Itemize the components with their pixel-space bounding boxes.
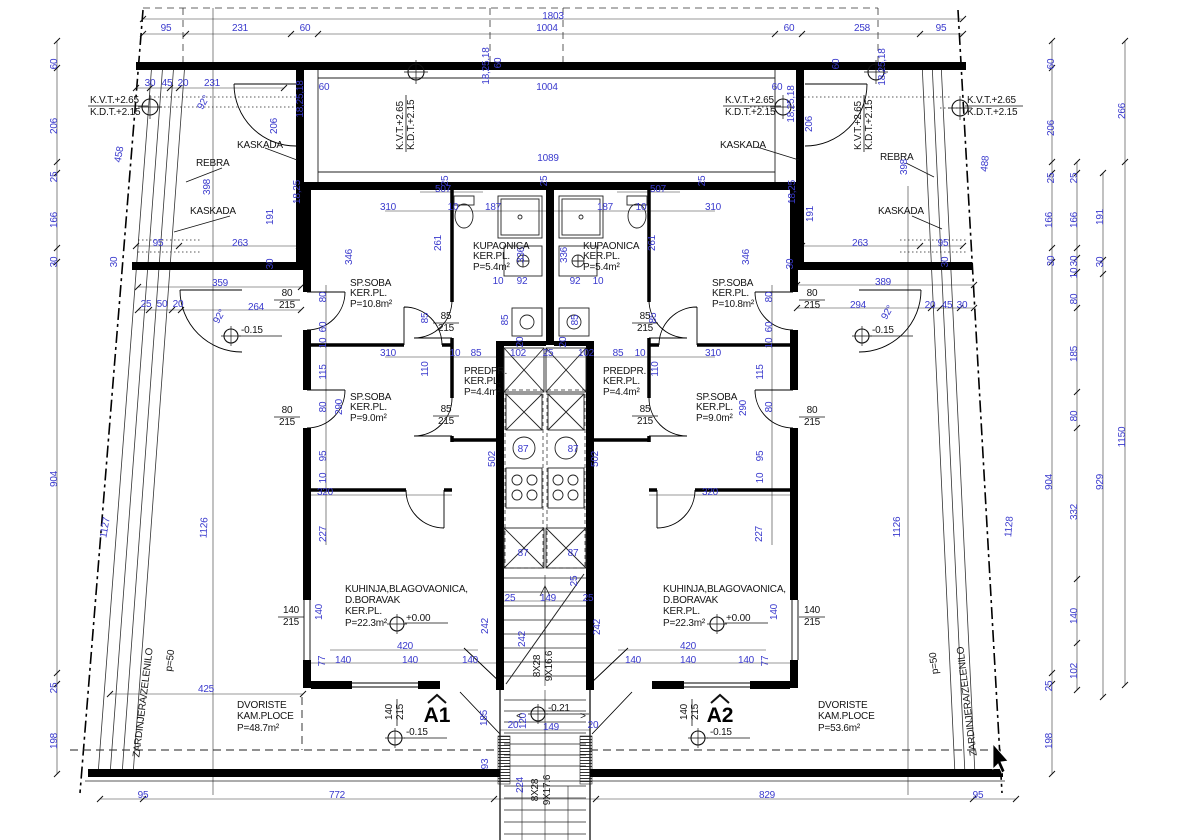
dimension-label: 10 [448, 202, 459, 213]
dimension-label: 290 [334, 398, 345, 415]
drawing-label: K.D.T.+2.15 [725, 107, 776, 118]
dimension-label: 95 [138, 790, 149, 801]
drawing-label: DVORISTE [818, 700, 868, 711]
drawing-label: 215 [283, 617, 300, 628]
dimension-label: 85 [500, 314, 511, 325]
dimension-label: 310 [380, 348, 397, 359]
dimension-label: 425 [198, 684, 215, 695]
drawing-label: K.D.T.+2.15 [967, 107, 1018, 118]
dimension-label: 85 [420, 312, 431, 323]
drawing-label: P=53.6m² [818, 723, 861, 734]
dimension-label: 60 [764, 321, 775, 332]
dimension-label: 102 [510, 348, 527, 359]
drawing-label: 80 [807, 288, 818, 299]
dimension-label: 10 [450, 348, 461, 359]
dimension-label: 50 [157, 299, 168, 310]
dimension-label: 187 [597, 202, 614, 213]
dimension-label: 25 [569, 575, 580, 586]
drawing-label: 215 [637, 323, 654, 334]
dimension-label: 10 [764, 337, 775, 348]
dimension-label: 60 [831, 58, 842, 69]
dimension-label: 18,25 [292, 179, 303, 204]
drawing-label: 215 [690, 703, 701, 720]
dimension-label: 294 [850, 300, 867, 311]
drawing-label: 80 [282, 405, 293, 416]
dimension-label: 92° [195, 94, 212, 112]
dimension-label: 20 [558, 336, 569, 347]
dimension-label: 30 [145, 78, 156, 89]
drawing-label: 9X16.6 [544, 650, 555, 681]
dimension-label: 30 [109, 256, 120, 267]
drawing-label: K.V.T.+2.65 [853, 101, 864, 150]
dimension-label: 30 [1095, 256, 1106, 267]
dimension-label: 25 [697, 175, 708, 186]
dimension-label: 60 [493, 57, 504, 68]
dimension-label: 904 [1044, 473, 1055, 490]
drawing-label: K.D.T.+2.15 [90, 107, 141, 118]
dimension-label: 231 [204, 78, 221, 89]
dimension-label: 77 [760, 655, 771, 666]
drawing-label: -0.15 [710, 727, 732, 738]
dimension-label: 85 [471, 348, 482, 359]
drawing-label: KER.PL. [712, 288, 749, 299]
dimension-label: 10 [318, 472, 329, 483]
drawing-label: +0.00 [726, 613, 751, 624]
dimension-label: 18,25,18 [481, 47, 492, 85]
drawing-label: -0.15 [872, 325, 894, 336]
drawing-label: 215 [438, 323, 455, 334]
drawing-label: K.D.T.+2.15 [864, 99, 875, 150]
drawing-label: KER.PL. [345, 606, 382, 617]
drawing-label: P=48.7m² [237, 723, 280, 734]
dimension-label: 140 [680, 655, 697, 666]
dimension-label: 346 [741, 248, 752, 265]
dimension-label: 1126 [198, 517, 210, 539]
drawing-label: -0.15 [241, 325, 263, 336]
dimension-label: 242 [517, 630, 528, 647]
dimension-label: 140 [462, 655, 479, 666]
dimension-label: 25 [49, 682, 60, 693]
dimension-label: 25 [505, 593, 516, 604]
dimension-label: 60 [1046, 58, 1057, 69]
drawing-label: REBRA [196, 158, 230, 169]
drawing-label: KER.PL. [583, 251, 620, 262]
dimension-label: 10 [1069, 267, 1080, 278]
dimension-label: 25 [141, 299, 152, 310]
dimension-label: 95 [318, 450, 329, 461]
dimension-label: 310 [380, 202, 397, 213]
dimension-label: 115 [755, 364, 766, 380]
dimension-label: 502 [590, 450, 601, 467]
drawing-label: 85 [640, 311, 651, 322]
dimension-label: 93 [480, 758, 491, 769]
dimension-label: 18,25 [787, 179, 798, 204]
dimension-label: 10 [593, 276, 604, 287]
dimension-label: 206 [269, 117, 280, 134]
dimension-label: 1004 [536, 82, 558, 93]
drawing-label: KASKADA [237, 140, 283, 151]
drawing-label: KUHINJA,BLAGOVAONICA, [663, 584, 786, 595]
drawing-label: -0.21 [548, 703, 570, 714]
dimension-label: 829 [759, 790, 776, 801]
dimension-label: 80 [318, 291, 329, 302]
dimension-label: 140 [402, 655, 419, 666]
dimension-label: 60 [49, 58, 60, 69]
dimension-label: 140 [314, 603, 325, 620]
dimension-label: 30 [265, 258, 276, 269]
dimension-label: 87 [568, 444, 579, 455]
dimension-label: 77 [317, 655, 328, 666]
dimension-label: 242 [480, 617, 491, 634]
dimension-label: 18,25,18 [877, 48, 888, 86]
drawing-label: 140 [679, 703, 690, 720]
dimension-label: 1128 [1003, 515, 1016, 537]
drawing-label: p=50 [164, 649, 178, 673]
drawing-label: 80 [282, 288, 293, 299]
dimension-label: 25 [543, 348, 554, 359]
drawing-label: DVORISTE [237, 700, 287, 711]
drawing-label: KER.PL. [603, 376, 640, 387]
dimension-label: 266 [1117, 102, 1128, 119]
dimension-label: 25 [1046, 172, 1057, 183]
drawing-label: P=22.3m² [345, 618, 388, 629]
dimension-label: 191 [265, 208, 276, 225]
dimension-label: 30 [49, 256, 60, 267]
dimension-label: 92° [879, 304, 896, 322]
drawing-label: KER.PL. [464, 376, 501, 387]
dimension-label: 85 [613, 348, 624, 359]
dimension-label: 60 [318, 321, 329, 332]
drawing-label: P=10.8m² [350, 299, 393, 310]
floor-plan-canvas: Tlocrt prizemlja - dvojna kuca A1/A2 (fl… [0, 0, 1200, 840]
dimension-label: 20 [515, 336, 526, 347]
dimension-label: 10 [493, 276, 504, 287]
dimension-label: 332 [1069, 503, 1080, 520]
drawing-label: KASKADA [190, 206, 236, 217]
dimension-label: 502 [487, 450, 498, 467]
dimension-label: 10 [755, 472, 766, 483]
drawing-label: 8X28 [532, 654, 543, 677]
dimension-label: 20 [588, 720, 599, 731]
dimension-label: 166 [49, 211, 60, 228]
drawing-label: 215 [279, 300, 296, 311]
dimension-label: 60 [772, 82, 783, 93]
dimension-label: 1089 [537, 153, 559, 164]
dimension-label: 310 [705, 348, 722, 359]
dimension-label: 95 [755, 450, 766, 461]
drawing-label: KASKADA [720, 140, 766, 151]
dimension-label: 25 [1044, 680, 1055, 691]
drawing-label: 140 [804, 605, 821, 616]
dimension-label: 92 [517, 276, 528, 287]
drawing-label: 85 [441, 311, 452, 322]
dimension-label: 258 [854, 23, 871, 34]
dimension-label: 320 [702, 487, 719, 498]
dimension-label: 264 [248, 302, 265, 313]
section-marker-hat [428, 695, 729, 703]
drawing-label: p=50 [928, 651, 942, 675]
dimension-label: 140 [335, 655, 352, 666]
dimension-label: 25 [583, 593, 594, 604]
dimension-label: 261 [647, 234, 658, 251]
drawing-label: 80 [807, 405, 818, 416]
dimension-label: 242 [592, 618, 603, 635]
mouse-cursor[interactable] [993, 744, 1008, 773]
dimension-label: 263 [852, 238, 869, 249]
dimension-label: 191 [1095, 208, 1106, 225]
dimension-label: 231 [232, 23, 249, 34]
dimension-label: 206 [1046, 119, 1057, 136]
drawing-label: ZARDINJERA/ZELENILO [955, 646, 979, 757]
drawing-label: 8X28 [530, 778, 541, 801]
dimension-label: 263 [232, 238, 249, 249]
drawing-label: K.V.T.+2.65 [395, 101, 406, 150]
drawing-label: 215 [438, 416, 455, 427]
drawing-label: P=5.4m² [473, 262, 511, 273]
drawing-label: KER.PL. [350, 402, 387, 413]
dimension-label: 95 [973, 790, 984, 801]
drawing-label: 215 [279, 417, 296, 428]
dimension-label: 140 [738, 655, 755, 666]
dimension-label: 95 [153, 238, 164, 249]
dimension-label: 227 [754, 525, 765, 542]
drawing-label: K.V.T.+2.65 [967, 95, 1016, 106]
dimension-label: 85 [570, 314, 581, 325]
dimension-label: 115 [318, 364, 329, 380]
dimension-label: 80 [764, 291, 775, 302]
dimension-label: 166 [1069, 211, 1080, 228]
dimension-label: 261 [433, 234, 444, 251]
drawing-label: P=5.4m² [583, 262, 621, 273]
dimension-label: 25 [49, 171, 60, 182]
dimension-label: 30 [957, 300, 968, 311]
dimension-label: 140 [625, 655, 642, 666]
drawing-label: < [516, 711, 522, 722]
dimension-label: 191 [805, 205, 816, 222]
dimension-label: 60 [784, 23, 795, 34]
dimension-label: 10 [636, 202, 647, 213]
drawing-label: K.D.T.+2.15 [406, 99, 417, 150]
dimension-label: 20 [173, 299, 184, 310]
dimension-label: 60 [300, 23, 311, 34]
drawing-label: KAM.PLOCE [818, 711, 875, 722]
drawing-label: KAM.PLOCE [237, 711, 294, 722]
dimension-label: 92 [570, 276, 581, 287]
drawing-label: P=10.8m² [712, 299, 755, 310]
drawing-label: KER.PL. [696, 402, 733, 413]
dimension-label: 206 [49, 117, 60, 134]
dimension-label: 95 [161, 23, 172, 34]
dimension-label: 929 [1095, 473, 1106, 490]
drawing-label: P=9.0m² [350, 413, 388, 424]
drawing-label: K.V.T.+2.65 [725, 95, 774, 106]
drawing-label: 85 [640, 404, 651, 415]
dimension-label: 87 [518, 444, 529, 455]
dimension-label: 87 [518, 548, 529, 559]
dimension-label: 1004 [536, 23, 558, 34]
drawing-label: +0.00 [406, 613, 431, 624]
dimension-label: 1127 [98, 516, 113, 539]
dimension-label: 102 [1069, 662, 1080, 679]
drawing-label: D.BORAVAK [345, 595, 401, 606]
dimension-label: 187 [485, 202, 502, 213]
dimension-label: 80 [764, 401, 775, 412]
drawing-label: KER.PL. [473, 251, 510, 262]
dimension-label: 95 [938, 238, 949, 249]
dimension-label: 20 [925, 300, 936, 311]
section-marker-label: A1 [424, 704, 451, 727]
dimension-label: 488 [979, 155, 991, 173]
dimension-label: 198 [49, 732, 60, 749]
dimension-label: 149 [543, 722, 560, 733]
dimension-label: 206 [804, 115, 815, 132]
dimension-label: 110 [420, 361, 431, 377]
dimension-label: 346 [344, 248, 355, 265]
floor-plan-page: Tlocrt prizemlja - dvojna kuca A1/A2 (fl… [0, 0, 1200, 840]
dimension-label: 80 [1069, 293, 1080, 304]
drawing-label: 215 [804, 417, 821, 428]
dimension-label: 198 [1044, 732, 1055, 749]
dimension-label: 336 [559, 246, 570, 263]
drawing-label: > [580, 711, 586, 722]
dimension-label: 185 [479, 709, 490, 726]
dimension-label: 420 [680, 641, 697, 652]
dimension-label: 60 [319, 82, 330, 93]
dimension-label: 420 [397, 641, 414, 652]
dimension-label: 45 [162, 78, 173, 89]
dimension-label: 140 [769, 603, 780, 620]
drawing-label: KER.PL. [663, 606, 700, 617]
dimension-label: 30 [940, 256, 951, 267]
drawing-label: P=4.4m² [603, 387, 641, 398]
dimension-label: 166 [1044, 211, 1055, 228]
dimension-label: 507 [650, 184, 667, 195]
dimension-label: 772 [329, 790, 346, 801]
drawing-label: 215 [804, 300, 821, 311]
drawing-label: P=22.3m² [663, 618, 706, 629]
shower-icon [498, 196, 542, 238]
section-marker-label: A2 [707, 704, 734, 727]
dimension-label: 25 [539, 175, 550, 186]
drawing-label: K.V.T.+2.65 [90, 95, 139, 106]
dimension-label: 904 [49, 470, 60, 487]
dimension-label: 30 [1069, 255, 1080, 266]
dimension-label: 45 [942, 300, 953, 311]
dimension-label: 80 [1069, 410, 1080, 421]
drawing-label: 9X17.6 [542, 774, 553, 805]
drawing-label: 140 [283, 605, 300, 616]
dimension-label: 224 [515, 776, 526, 793]
dimension-label: 30 [785, 258, 796, 269]
dimension-label: 80 [318, 401, 329, 412]
drawing-label: 215 [637, 416, 654, 427]
dimension-label: 102 [578, 348, 595, 359]
dimension-label: 458 [113, 145, 127, 163]
dimension-label: 398 [202, 178, 213, 195]
dimension-label: 18,25,18 [295, 80, 306, 118]
drawing-label: ZARDINJERA/ZELENILO [131, 647, 155, 758]
dimension-label: 25 [1069, 172, 1080, 183]
drawing-label: REBRA [880, 152, 914, 163]
dimension-label: 20 [178, 78, 189, 89]
drawing-label: KUHINJA,BLAGOVAONICA, [345, 584, 468, 595]
drawing-label: P=9.0m² [696, 413, 734, 424]
dimension-label: 87 [568, 548, 579, 559]
dimension-label: 185 [1069, 345, 1080, 362]
dimension-label: 310 [705, 202, 722, 213]
drawing-label: KER.PL. [350, 288, 387, 299]
drawing-label: 85 [441, 404, 452, 415]
drawing-label: 215 [804, 617, 821, 628]
dimension-label: 30 [1046, 255, 1057, 266]
dimension-label: 110 [650, 361, 661, 377]
drawing-label: 215 [395, 703, 406, 720]
dimension-label: 10 [318, 337, 329, 348]
dimension-label: 95 [936, 23, 947, 34]
drawing-label: 140 [384, 703, 395, 720]
dimension-label: 149 [540, 593, 557, 604]
dimension-label: 140 [1069, 607, 1080, 624]
dimension-label: 18,25,18 [786, 85, 797, 123]
drawing-label: -0.15 [406, 727, 428, 738]
dimension-label: 359 [212, 278, 229, 289]
dimension-label: 320 [317, 487, 334, 498]
dimension-label: 1803 [542, 11, 564, 22]
drawing-label: KASKADA [878, 206, 924, 217]
dimension-label: 1126 [892, 516, 903, 537]
dimension-label: 25 [440, 175, 451, 186]
dimension-label: 389 [875, 277, 892, 288]
drawing-label: P=4.4m² [464, 387, 502, 398]
dimension-label: 227 [318, 525, 329, 542]
drawing-label: D.BORAVAK [663, 595, 719, 606]
dimension-label: 290 [738, 399, 749, 416]
dimension-label: 1150 [1117, 426, 1128, 447]
dimension-label: 10 [635, 348, 646, 359]
